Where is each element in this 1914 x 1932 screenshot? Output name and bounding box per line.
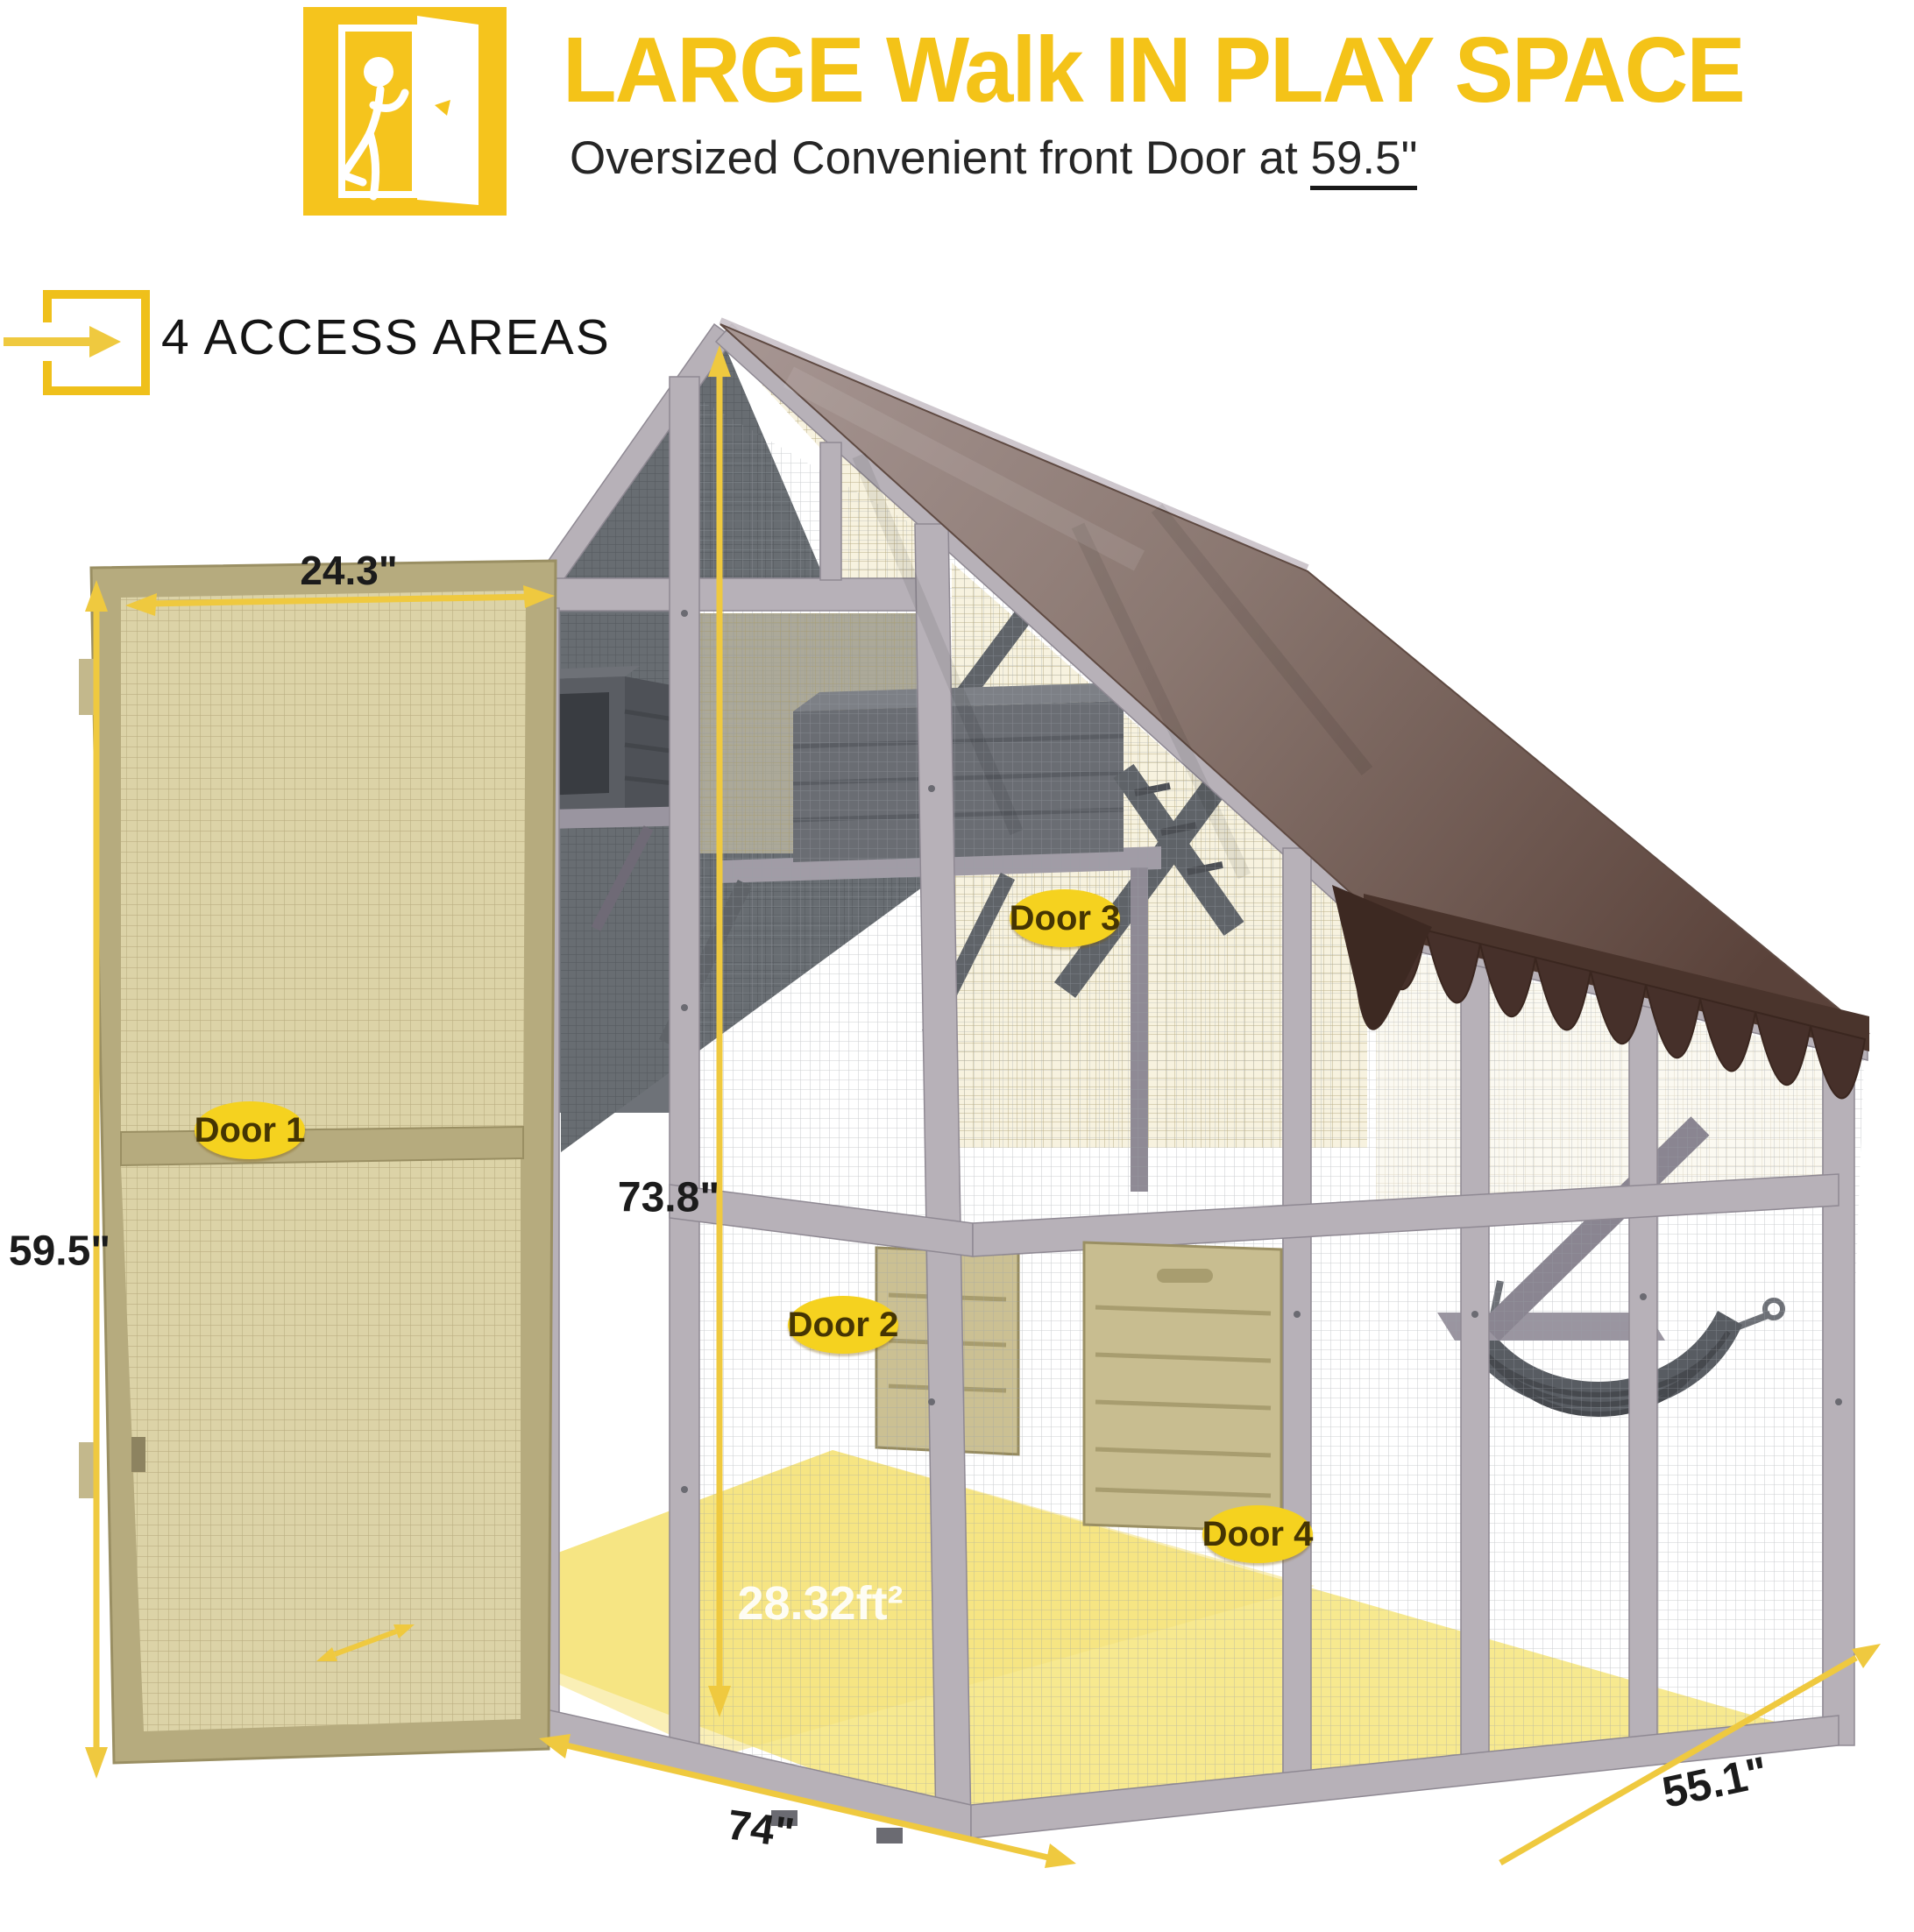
rear-corner-post [1823, 1027, 1854, 1745]
open-mesh-door [79, 561, 556, 1763]
door-latch [131, 1437, 145, 1472]
catio-illustration [0, 0, 1914, 1932]
door-height-callout: 59.5" [1310, 132, 1417, 190]
subtitle-text: Oversized Convenient front Door at [570, 132, 1310, 184]
page-title: LARGE Walk IN PLAY SPACE [563, 18, 1744, 124]
dim-door-width: 24.3" [300, 547, 397, 594]
dim-door-height: 59.5" [9, 1228, 110, 1276]
access-areas-label: 4 ACCESS AREAS [161, 308, 611, 366]
product-infographic: LARGE Walk IN PLAY SPACE Oversized Conve… [0, 0, 1914, 1932]
walk-in-door-icon [293, 2, 517, 226]
door4-handle [1157, 1269, 1213, 1283]
dim-floor-area: 28.32ft² [737, 1576, 903, 1631]
center-post [670, 377, 699, 1765]
door1-badge: Door 1 [195, 1101, 305, 1159]
dim-front-width: 74" [724, 1801, 797, 1858]
collar-beam [531, 578, 927, 611]
door3-badge: Door 3 [1010, 889, 1120, 947]
door2-badge: Door 2 [788, 1296, 898, 1354]
page-subtitle: Oversized Convenient front Door at 59.5" [570, 131, 1417, 185]
door4-panel [1084, 1242, 1281, 1532]
dim-inner-height: 73.8" [618, 1174, 720, 1222]
door4-badge: Door 4 [1202, 1505, 1313, 1563]
access-arrow-icon [4, 286, 154, 400]
